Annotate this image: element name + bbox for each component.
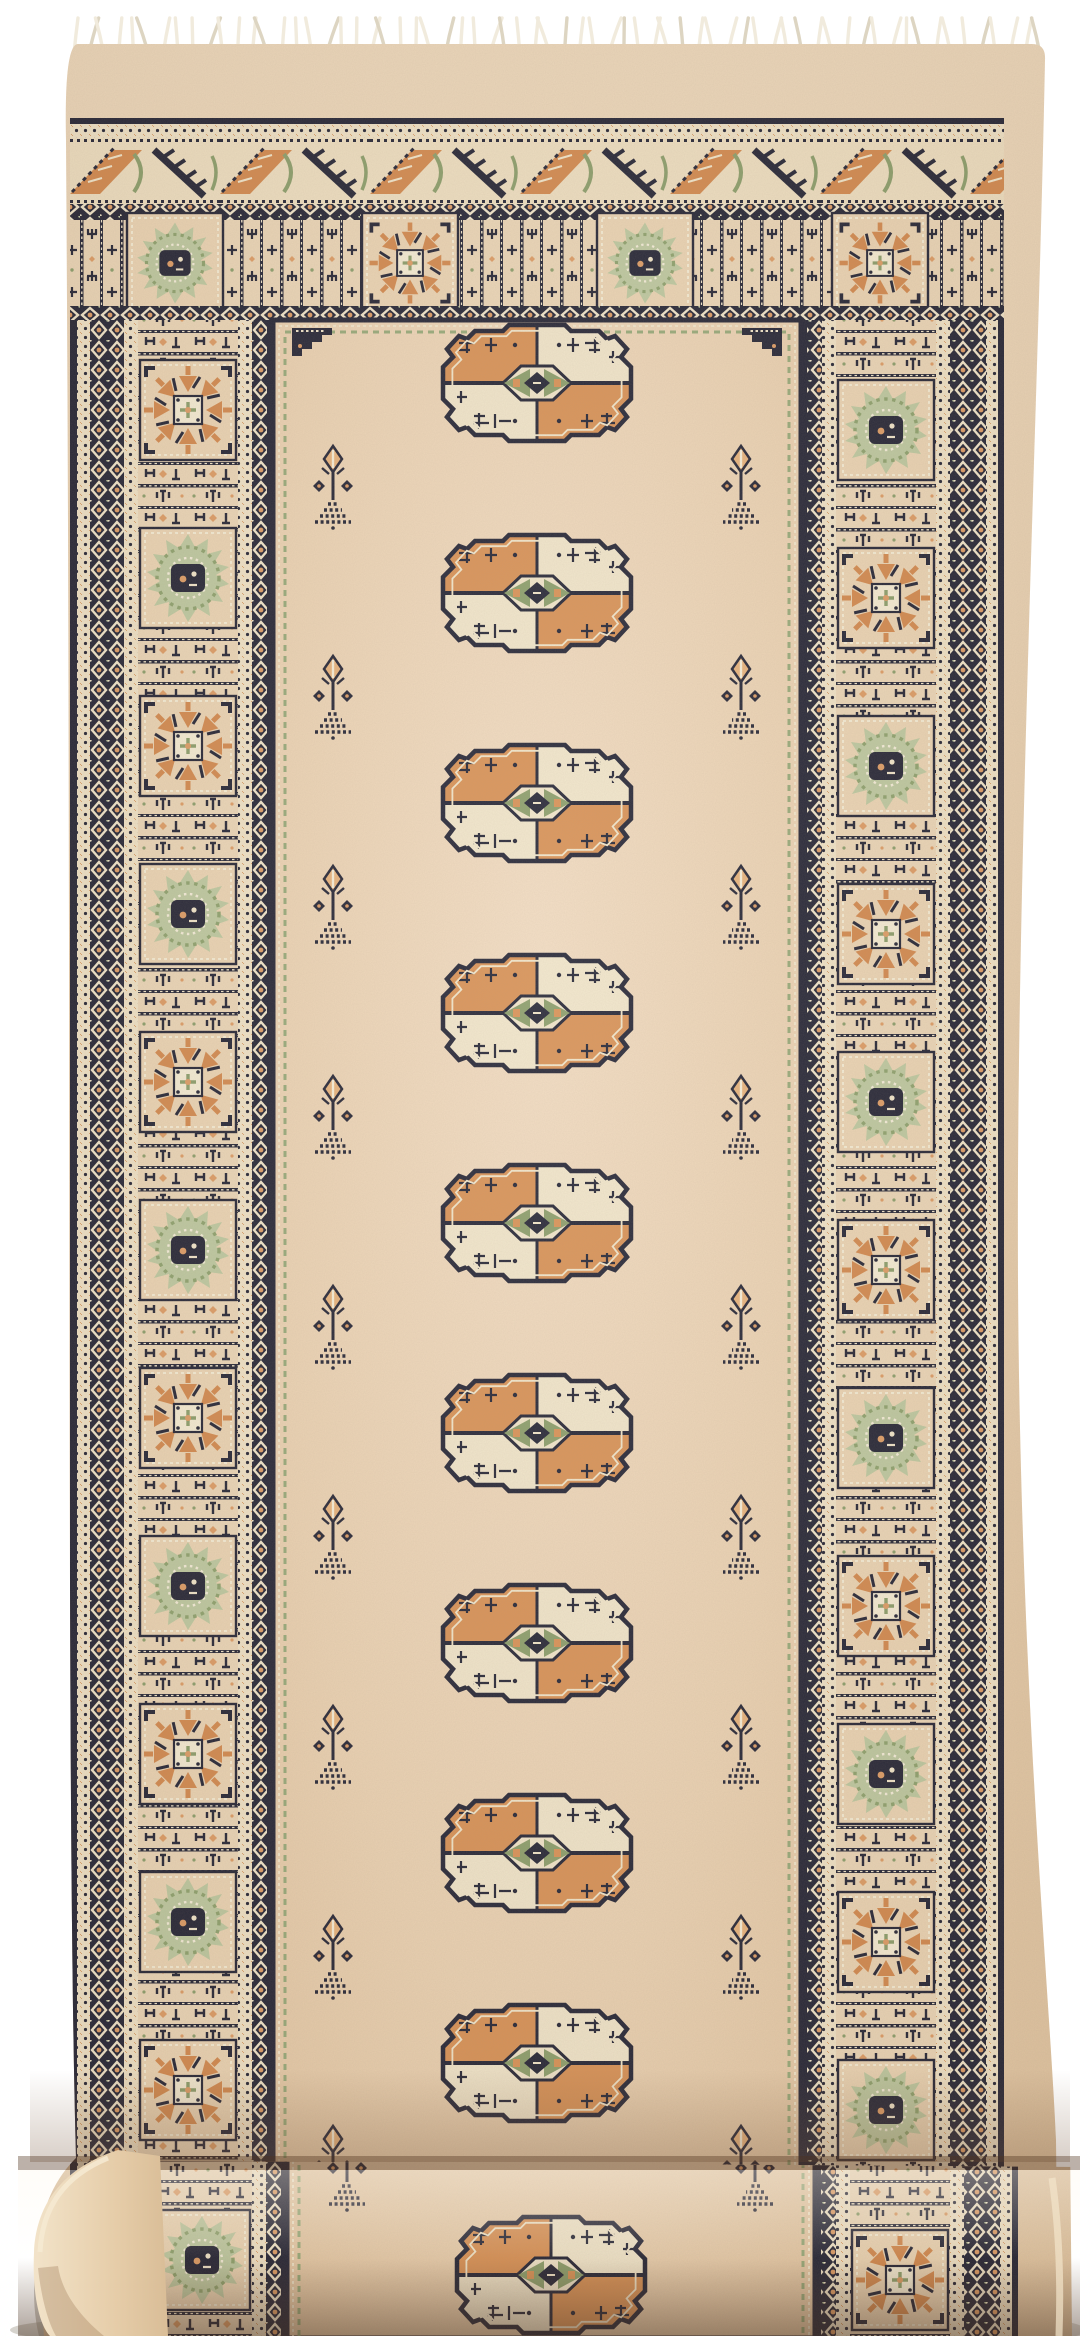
photo-canvas [0, 0, 1080, 2336]
rug-photo [0, 0, 1080, 2336]
roll-shading [18, 2070, 1080, 2336]
rug-body [30, 40, 1070, 2336]
